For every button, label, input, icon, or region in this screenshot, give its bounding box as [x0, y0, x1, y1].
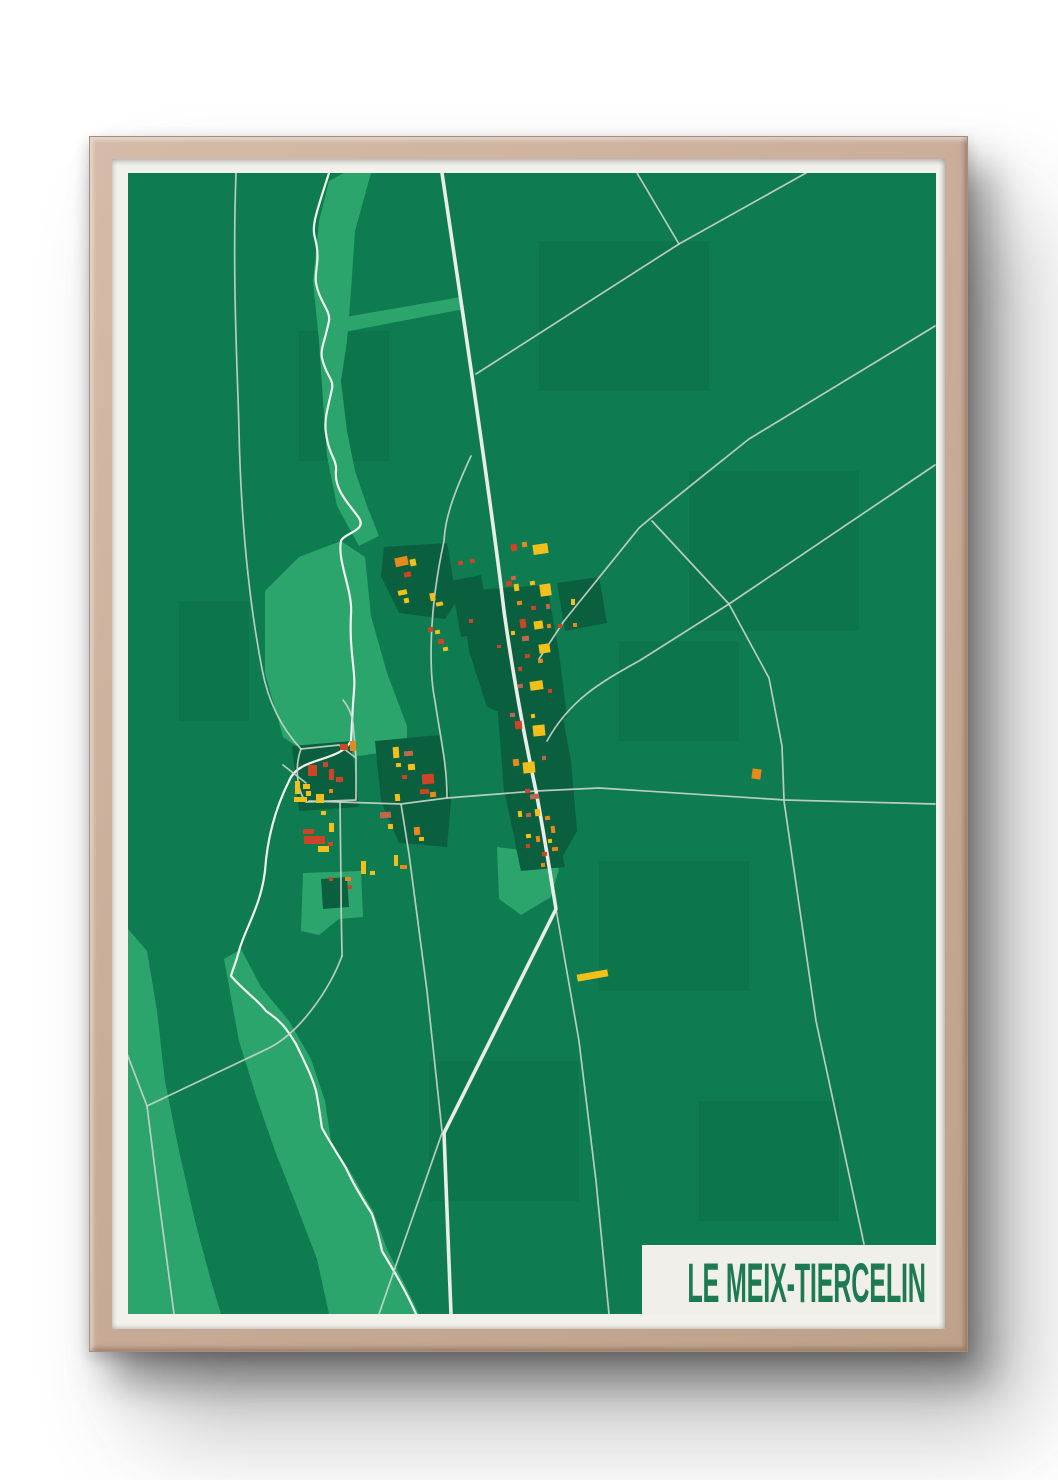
building	[552, 847, 558, 852]
building	[303, 784, 310, 789]
building	[511, 631, 516, 636]
building	[394, 855, 398, 866]
building	[329, 769, 334, 780]
building	[522, 542, 528, 548]
building	[518, 667, 523, 672]
building	[535, 809, 541, 816]
building	[526, 834, 531, 839]
building	[539, 583, 552, 596]
page-background: LE MEIX-TIERCELIN	[0, 0, 1058, 1480]
building	[316, 794, 324, 803]
building	[541, 863, 545, 867]
building	[321, 811, 326, 815]
field-tint	[179, 601, 249, 721]
building	[361, 861, 366, 874]
building	[469, 619, 473, 623]
field-tint	[619, 641, 739, 741]
building	[547, 624, 552, 629]
building	[308, 765, 317, 776]
building	[538, 659, 544, 664]
field-tint	[429, 1061, 579, 1201]
building	[513, 759, 520, 767]
building	[340, 744, 348, 750]
village-block	[321, 877, 349, 909]
building	[546, 604, 551, 610]
building	[438, 639, 445, 645]
building	[388, 824, 393, 829]
building	[420, 789, 429, 795]
building	[329, 823, 334, 832]
building	[558, 624, 562, 628]
building	[396, 763, 401, 767]
building	[529, 680, 543, 691]
village-block	[515, 839, 565, 871]
building	[532, 543, 548, 555]
building	[303, 829, 314, 834]
building	[525, 789, 530, 794]
building	[393, 747, 400, 758]
building	[304, 836, 325, 844]
building	[380, 812, 391, 819]
building	[348, 885, 352, 889]
building	[751, 768, 761, 779]
building	[525, 654, 531, 659]
building	[395, 794, 400, 801]
picture-frame: LE MEIX-TIERCELIN	[89, 136, 968, 1352]
village-block	[557, 577, 607, 631]
title-box: LE MEIX-TIERCELIN	[642, 1245, 936, 1314]
field-tint	[699, 1101, 839, 1221]
building	[518, 684, 524, 689]
building	[551, 826, 556, 833]
building	[542, 852, 547, 857]
building	[419, 837, 424, 841]
building	[531, 714, 535, 718]
building	[519, 619, 526, 629]
building	[443, 647, 449, 652]
building	[522, 761, 535, 773]
building	[430, 792, 436, 797]
building	[515, 721, 523, 730]
building	[573, 623, 577, 627]
building	[422, 774, 435, 785]
building	[329, 789, 333, 793]
building	[404, 751, 413, 757]
building	[538, 643, 550, 653]
building	[404, 598, 410, 604]
field-tint	[539, 241, 709, 391]
building	[428, 627, 434, 633]
field-tint	[599, 861, 749, 991]
building	[531, 606, 537, 611]
building	[345, 877, 351, 881]
building	[514, 584, 520, 592]
building	[511, 576, 517, 581]
building	[526, 813, 531, 818]
building	[402, 775, 407, 779]
building	[295, 781, 300, 794]
building	[526, 844, 530, 848]
building	[548, 839, 552, 843]
building	[318, 846, 329, 852]
map-poster: LE MEIX-TIERCELIN	[128, 173, 936, 1314]
building	[545, 816, 550, 821]
building	[306, 791, 311, 796]
building	[414, 827, 421, 835]
building	[522, 636, 530, 642]
building	[542, 756, 546, 760]
poster-mat: LE MEIX-TIERCELIN	[112, 159, 945, 1329]
building	[435, 630, 441, 635]
building	[518, 811, 523, 817]
field-tint	[689, 471, 859, 631]
building	[350, 741, 356, 751]
building	[548, 689, 553, 694]
building	[400, 865, 407, 869]
building	[323, 762, 328, 767]
building	[510, 713, 515, 718]
building	[329, 877, 333, 881]
building	[536, 836, 541, 842]
building	[408, 764, 415, 770]
poster-title: LE MEIX-TIERCELIN	[688, 1255, 926, 1311]
building	[571, 599, 575, 605]
building	[517, 601, 523, 606]
building	[530, 581, 536, 586]
building	[532, 724, 545, 736]
building	[506, 581, 513, 587]
building	[530, 794, 539, 800]
building	[497, 645, 501, 648]
building	[294, 797, 307, 802]
building	[533, 620, 543, 629]
map-graphic	[128, 173, 936, 1314]
building	[336, 777, 343, 782]
building	[370, 871, 375, 875]
building	[511, 544, 518, 552]
building	[328, 842, 333, 846]
